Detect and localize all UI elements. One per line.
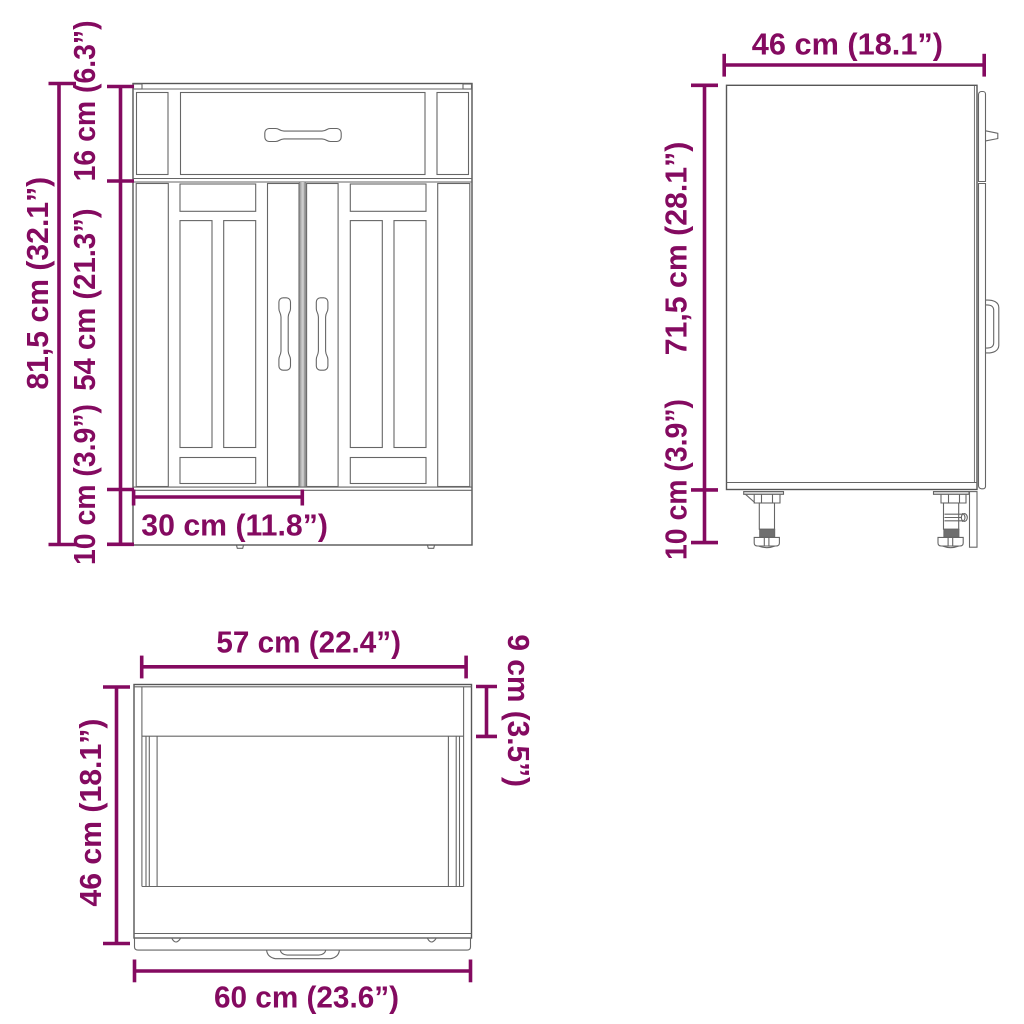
svg-text:9 cm (3.5”): 9 cm (3.5”)	[501, 634, 536, 787]
svg-text:10 cm (3.9”): 10 cm (3.9”)	[659, 399, 694, 560]
svg-text:54 cm (21.3”): 54 cm (21.3”)	[67, 208, 102, 390]
svg-text:46 cm (18.1”): 46 cm (18.1”)	[752, 26, 943, 61]
svg-text:10 cm (3.9”): 10 cm (3.9”)	[67, 404, 102, 565]
svg-text:71,5 cm (28.1”): 71,5 cm (28.1”)	[659, 142, 694, 356]
svg-text:46 cm (18.1”): 46 cm (18.1”)	[73, 719, 108, 907]
svg-text:60 cm (23.6”): 60 cm (23.6”)	[214, 980, 399, 1015]
svg-text:81,5 cm (32.1”): 81,5 cm (32.1”)	[20, 177, 55, 390]
svg-text:57 cm (22.4”): 57 cm (22.4”)	[216, 625, 401, 660]
svg-text:16 cm (6.3”): 16 cm (6.3”)	[67, 20, 102, 181]
svg-text:30 cm (11.8”): 30 cm (11.8”)	[141, 507, 328, 542]
